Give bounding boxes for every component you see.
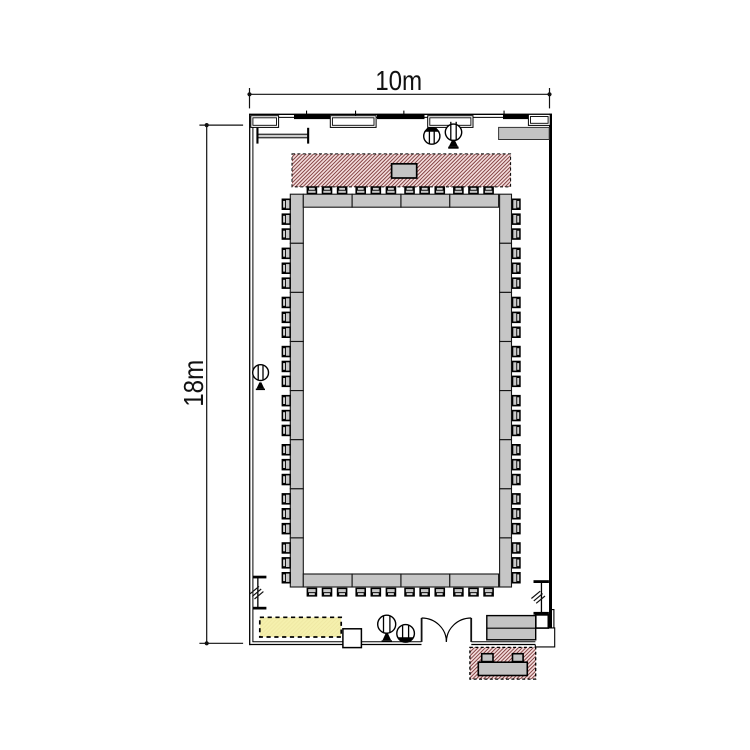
svg-text:10m: 10m <box>375 65 422 96</box>
svg-text:18m: 18m <box>178 360 209 407</box>
